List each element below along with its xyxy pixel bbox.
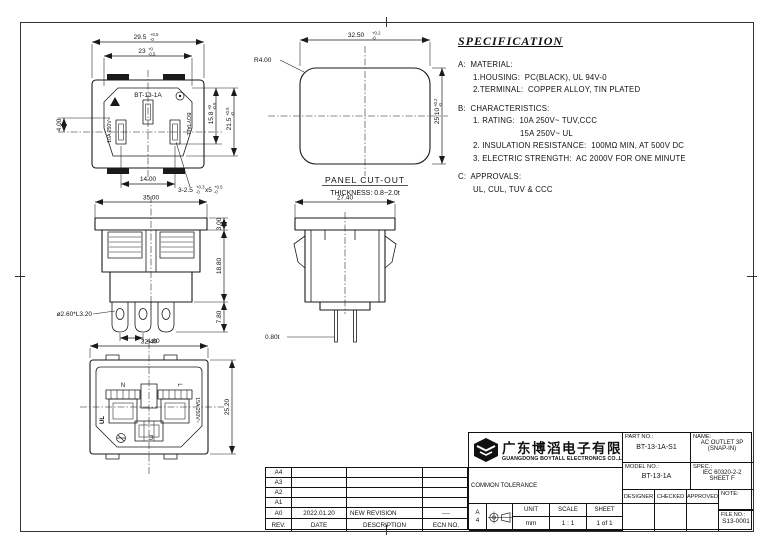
spec-line: 1. RATING: 10A 250V~ TUV,CCC (458, 115, 750, 128)
tolerance-title: COMMON TOLERANCE (471, 483, 620, 490)
part-no-label: PART NO.: (623, 433, 690, 440)
rev-cell: ---- (423, 508, 469, 519)
rev-cell (423, 488, 469, 498)
rev-header: ECN NO. (423, 519, 469, 531)
side2-snap-wing-right (385, 236, 396, 268)
spec-line: 2. INSULATION RESISTANCE: 100MΩ MIN, AT … (458, 140, 750, 153)
dim-side2-width: 27.40 (337, 195, 354, 202)
rev-cell: A3 (266, 478, 292, 488)
rear-earth-label: E (149, 433, 153, 439)
scale-value: 1 : 1 (550, 517, 586, 530)
part-no-value: BT-13-1A-S1 (623, 444, 690, 451)
front-view: BT-13-1A 10A 250V~ BOYTALL 29.5 +0.5 -0 … (50, 26, 270, 201)
sheet-value: 1 of 1 (587, 517, 622, 530)
rev-cell (423, 498, 469, 508)
border-tick-left (15, 276, 25, 277)
spec-line: C: APPROVALS: (458, 171, 750, 184)
dim-rear-height: 25.20 (224, 398, 231, 415)
rev-cell: NEW REVISION (347, 508, 423, 519)
rear-terminal-neutral (106, 390, 140, 423)
side-rib-left (108, 232, 142, 258)
dim-side-body-height: 18.80 (216, 257, 223, 274)
tolerance-cell: COMMON TOLERANCE DIMENSION: ANGULAR: .00… (469, 468, 623, 504)
approved-value-cell (687, 504, 719, 531)
sheet-cell: SHEET 1 of 1 (587, 504, 623, 531)
rev-cell: A2 (266, 488, 292, 498)
designer-label: DESIGNER (623, 490, 654, 503)
front-brand-label: BOYTALL (185, 113, 191, 136)
side-view-2: 27.40 0.80t (263, 192, 428, 344)
dim-body-height-tol-dn: -0 (230, 112, 235, 116)
side-view: 35.00 3.00 18.80 7.80 4.80 ø2.60*L3.20 (50, 192, 250, 344)
rev-cell (423, 468, 469, 478)
dim-body-height: 21.5 (226, 117, 233, 130)
earth-symbol-icon (117, 434, 126, 443)
dim-cutout-width-tol-dn: -0 (372, 36, 376, 41)
rear-view: N L 15A 250V~ UL E 32.40 25.20 (48, 336, 258, 482)
scale-cell: SCALE 1 : 1 (550, 504, 587, 531)
company-name-en: GUANGDONG BOYTALL ELECTRONICS CO.,LTD (502, 456, 623, 462)
rev-header: REV. (266, 519, 292, 531)
checked-label: CHECKED (655, 490, 686, 503)
dim-side-flange: 3.00 (216, 217, 223, 230)
rev-cell (347, 498, 423, 508)
side-terminals (112, 302, 174, 332)
title-block: 广东博滔电子有限公司 GUANGDONG BOYTALL ELECTRONICS… (468, 432, 752, 530)
rev-cell (347, 488, 423, 498)
rear-live-label: L (176, 383, 182, 387)
dim-recess-height: 15.8 (208, 111, 215, 124)
sheet-label: SHEET (587, 504, 622, 517)
note-cell: NOTE: (719, 490, 753, 510)
front-model-label: BT-13-1A (134, 92, 162, 99)
rev-cell: A4 (266, 468, 292, 478)
part-no-cell: PART NO.: BT-13-1A-S1 (623, 433, 691, 463)
spec-line: A: MATERIAL: (458, 59, 750, 72)
dim-rear-width: 32.40 (141, 339, 158, 346)
rev-header: DESCRIPTION (347, 519, 423, 531)
unit-label: UNIT (513, 504, 549, 517)
dim-cutout-height-tol-dn: -0 (438, 103, 443, 107)
panel-cutout-view: 32.50 +0.2 -0 25.10 +0.2 -0 R4.00 PANEL … (250, 26, 455, 201)
company-name-cn: 广东博滔电子有限公司 (502, 437, 623, 457)
dim-cutout-width: 32.50 (348, 32, 365, 39)
paper-size-cell: A 4 (469, 504, 487, 531)
rear-neutral-label: N (121, 383, 125, 389)
model-no-label: MODEL NO.: (623, 463, 690, 470)
spec-label: SPEC.: (691, 463, 753, 470)
warning-triangle-icon (110, 97, 120, 106)
dim-outer-width-tol-dn: -0 (150, 37, 154, 42)
dim-outer-width: 29.5 (134, 34, 147, 41)
file-no-cell: FILE NO.: S13-0001 (719, 510, 753, 531)
side2-pin-thickness-label: 0.80t (265, 334, 280, 341)
third-angle-projection-icon (487, 504, 513, 531)
specification-title: SPECIFICATION (458, 34, 750, 49)
spec-line: 3. ELECTRIC STRENGTH: AC 2000V FOR ONE M… (458, 153, 750, 166)
dim-side-width: 35.00 (143, 195, 160, 202)
revision-table: A4 A3 A2 A1 A0 2022.01.20 NEW REVISION -… (265, 467, 468, 530)
scale-label: SCALE (550, 504, 586, 517)
rear-rating-label: 15A 250V~ (194, 397, 200, 423)
spec-line: B: CHARACTERISTICS: (458, 103, 750, 116)
panel-cutout-title: PANEL CUT-OUT (325, 175, 405, 185)
designer-header-cell: DESIGNER (623, 490, 655, 504)
cutout-radius-label: R4.00 (254, 57, 272, 64)
dim-recess-height-tol-dn: -0.5 (212, 102, 217, 110)
dim-recess-width: 23 (138, 48, 146, 55)
dim-front-left: 4.00 (56, 118, 63, 131)
ul-mark: UL (100, 416, 106, 424)
border-tick-right (747, 276, 757, 277)
spec-line: UL, CUL, TUV & CCC (458, 184, 750, 197)
name-value-2: (SNAP-IN) (691, 446, 753, 452)
side-rib-right (160, 232, 194, 258)
dim-cutout-height: 25.10 (434, 107, 441, 124)
rev-cell (347, 478, 423, 488)
rev-cell: A1 (266, 498, 292, 508)
note-label: NOTE: (719, 490, 753, 497)
rear-terminal-live (158, 390, 192, 423)
rev-cell (423, 478, 469, 488)
dim-side-terminal-height: 7.80 (216, 310, 223, 323)
spec-line: 15A 250V~ UL (458, 128, 750, 141)
rev-cell: 2022.01.20 (292, 508, 347, 519)
projection-symbol-cell (487, 504, 513, 531)
dim-recess-width-tol-dn: -0.5 (148, 52, 156, 57)
unit-value: mm (513, 517, 549, 530)
paper-size-number: 4 (469, 517, 486, 525)
paper-size-letter: A (469, 509, 486, 517)
model-no-value: BT-13-1A (623, 473, 690, 480)
side-hole-label: ø2.60*L3.20 (57, 311, 93, 318)
certification-mark-icon (176, 92, 184, 100)
file-no-label: FILE NO.: (719, 511, 753, 518)
checked-header-cell: CHECKED (655, 490, 687, 504)
rev-cell (292, 478, 347, 488)
rev-cell: A0 (266, 508, 292, 519)
specification-block: SPECIFICATION A: MATERIAL: 1.HOUSING: PC… (458, 34, 750, 196)
spec-line: 1.HOUSING: PC(BLACK), UL 94V-0 (458, 72, 750, 85)
model-no-cell: MODEL NO.: BT-13-1A (623, 463, 691, 490)
company-logo (473, 437, 499, 463)
side2-snap-wing-left (294, 236, 305, 268)
side2-pins (335, 310, 357, 342)
spec-line: 2.TERMINAL: COPPER ALLOY, TIN PLATED (458, 84, 750, 97)
dim-pin-spacing: 14.00 (140, 176, 157, 183)
rev-cell (292, 488, 347, 498)
rev-cell (292, 498, 347, 508)
engineering-drawing-page: { "views": { "front": { "model_label": "… (0, 0, 770, 544)
approved-label: APPROVED (687, 490, 718, 503)
designer-value-cell (623, 504, 655, 531)
company-cell: 广东博滔电子有限公司 GUANGDONG BOYTALL ELECTRONICS… (469, 433, 623, 468)
rev-cell (292, 468, 347, 478)
checked-value-cell (655, 504, 687, 531)
unit-cell: UNIT mm (513, 504, 550, 531)
name-cell: NAME: AC OUTLET 3P (SNAP-IN) (691, 433, 753, 463)
name-label: NAME: (691, 433, 753, 440)
rev-header: DATE (292, 519, 347, 531)
front-rating-label: 10A 250V~ (107, 117, 113, 143)
rev-cell (347, 468, 423, 478)
file-no-value: S13-0001 (719, 518, 753, 525)
spec-value-2: SHEET F (691, 476, 753, 482)
spec-cell: SPEC.: IEC 60320-2-2 SHEET F (691, 463, 753, 490)
approved-header-cell: APPROVED (687, 490, 719, 504)
